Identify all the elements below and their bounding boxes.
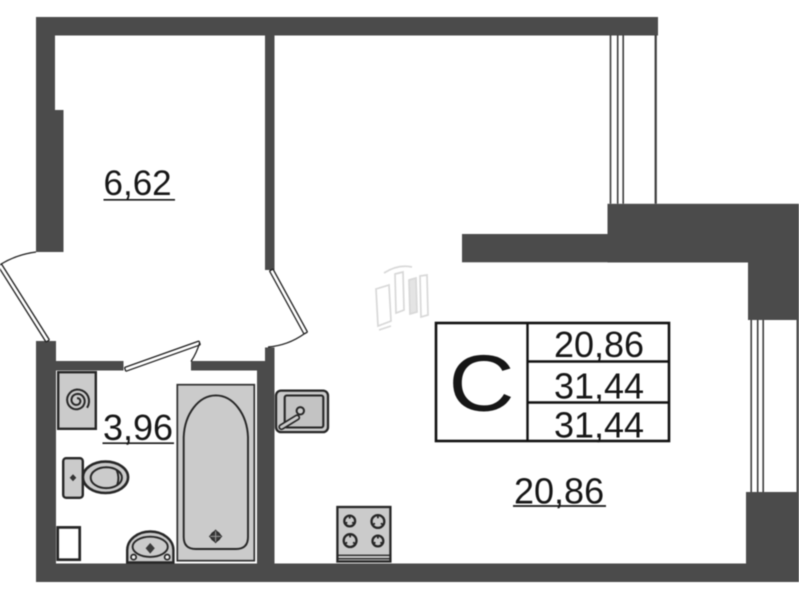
svg-text:20,86: 20,86 — [554, 324, 644, 365]
svg-text:C: C — [449, 339, 515, 428]
svg-text:31,44: 31,44 — [554, 366, 644, 407]
svg-text:31,44: 31,44 — [554, 405, 644, 446]
svg-text:6,62: 6,62 — [104, 164, 172, 203]
svg-text:3,96: 3,96 — [103, 407, 173, 448]
